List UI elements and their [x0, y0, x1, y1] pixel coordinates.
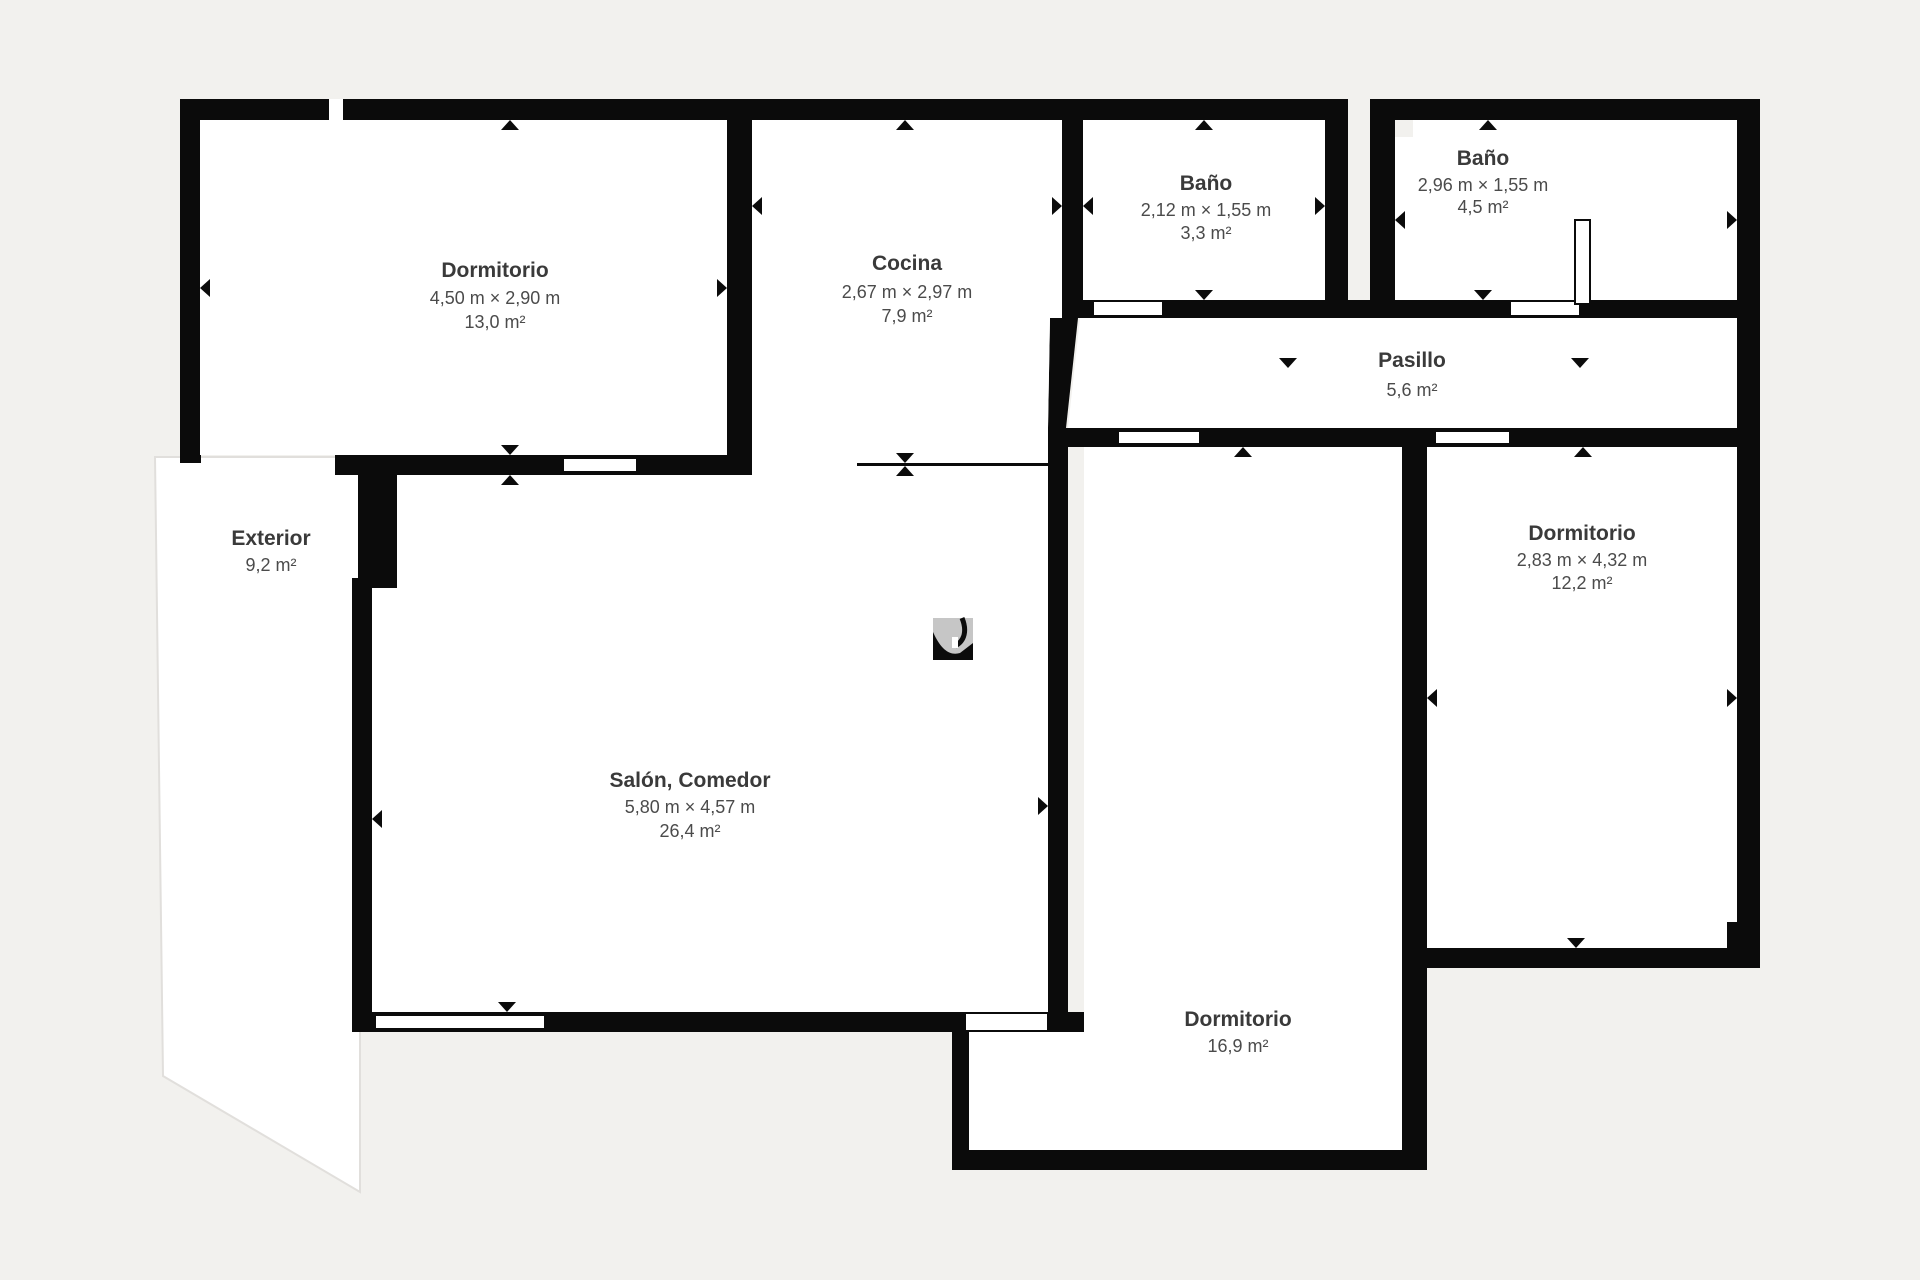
door-opening-dormitorio3	[1118, 431, 1200, 444]
door-leaf-bano2	[1575, 220, 1590, 304]
wall-notch-slot	[329, 99, 343, 129]
door-opening-dormitorio2	[1435, 431, 1510, 444]
room-dims-dormitorio2: 2,83 m × 4,32 m	[1517, 550, 1648, 570]
room-area-exterior: 9,2 m²	[245, 555, 296, 575]
room-title-bano1: Baño	[1180, 172, 1233, 195]
room-floor-bano2	[1395, 120, 1737, 300]
room-dims-cocina: 2,67 m × 2,97 m	[842, 282, 973, 302]
room-title-exterior: Exterior	[231, 527, 310, 550]
room-area-salon: 26,4 m²	[659, 821, 720, 841]
room-area-dormitorio1: 13,0 m²	[464, 312, 525, 332]
door-opening-salon-dormitorio3	[965, 1013, 1048, 1031]
window-dormitorio1	[563, 458, 637, 472]
door-opening-bano2	[1510, 301, 1580, 316]
room-title-dormitorio3: Dormitorio	[1184, 1008, 1291, 1031]
floor-plan: Dormitorio 4,50 m × 2,90 m 13,0 m² Cocin…	[0, 0, 1920, 1280]
room-dims-salon: 5,80 m × 4,57 m	[625, 797, 756, 817]
room-dims-bano1: 2,12 m × 1,55 m	[1141, 200, 1272, 220]
door-opening-bano1	[1093, 301, 1163, 316]
room-area-bano1: 3,3 m²	[1180, 223, 1231, 243]
camera-marker-icon[interactable]	[933, 618, 973, 660]
room-title-cocina: Cocina	[872, 252, 942, 275]
room-title-salon: Salón, Comedor	[609, 769, 770, 792]
room-title-dormitorio2: Dormitorio	[1528, 522, 1635, 545]
room-title-pasillo: Pasillo	[1378, 349, 1446, 372]
room-floor-pasillo	[1068, 318, 1737, 428]
room-area-dormitorio2: 12,2 m²	[1551, 573, 1612, 593]
room-title-dormitorio1: Dormitorio	[441, 259, 548, 282]
room-area-cocina: 7,9 m²	[881, 306, 932, 326]
room-area-dormitorio3: 16,9 m²	[1207, 1036, 1268, 1056]
window-salon	[375, 1015, 545, 1029]
room-divider-line	[857, 463, 1048, 466]
room-title-bano2: Baño	[1457, 147, 1510, 170]
room-dims-bano2: 2,96 m × 1,55 m	[1418, 175, 1549, 195]
room-area-pasillo: 5,6 m²	[1386, 380, 1437, 400]
room-dims-dormitorio1: 4,50 m × 2,90 m	[430, 288, 561, 308]
room-area-bano2: 4,5 m²	[1457, 197, 1508, 217]
